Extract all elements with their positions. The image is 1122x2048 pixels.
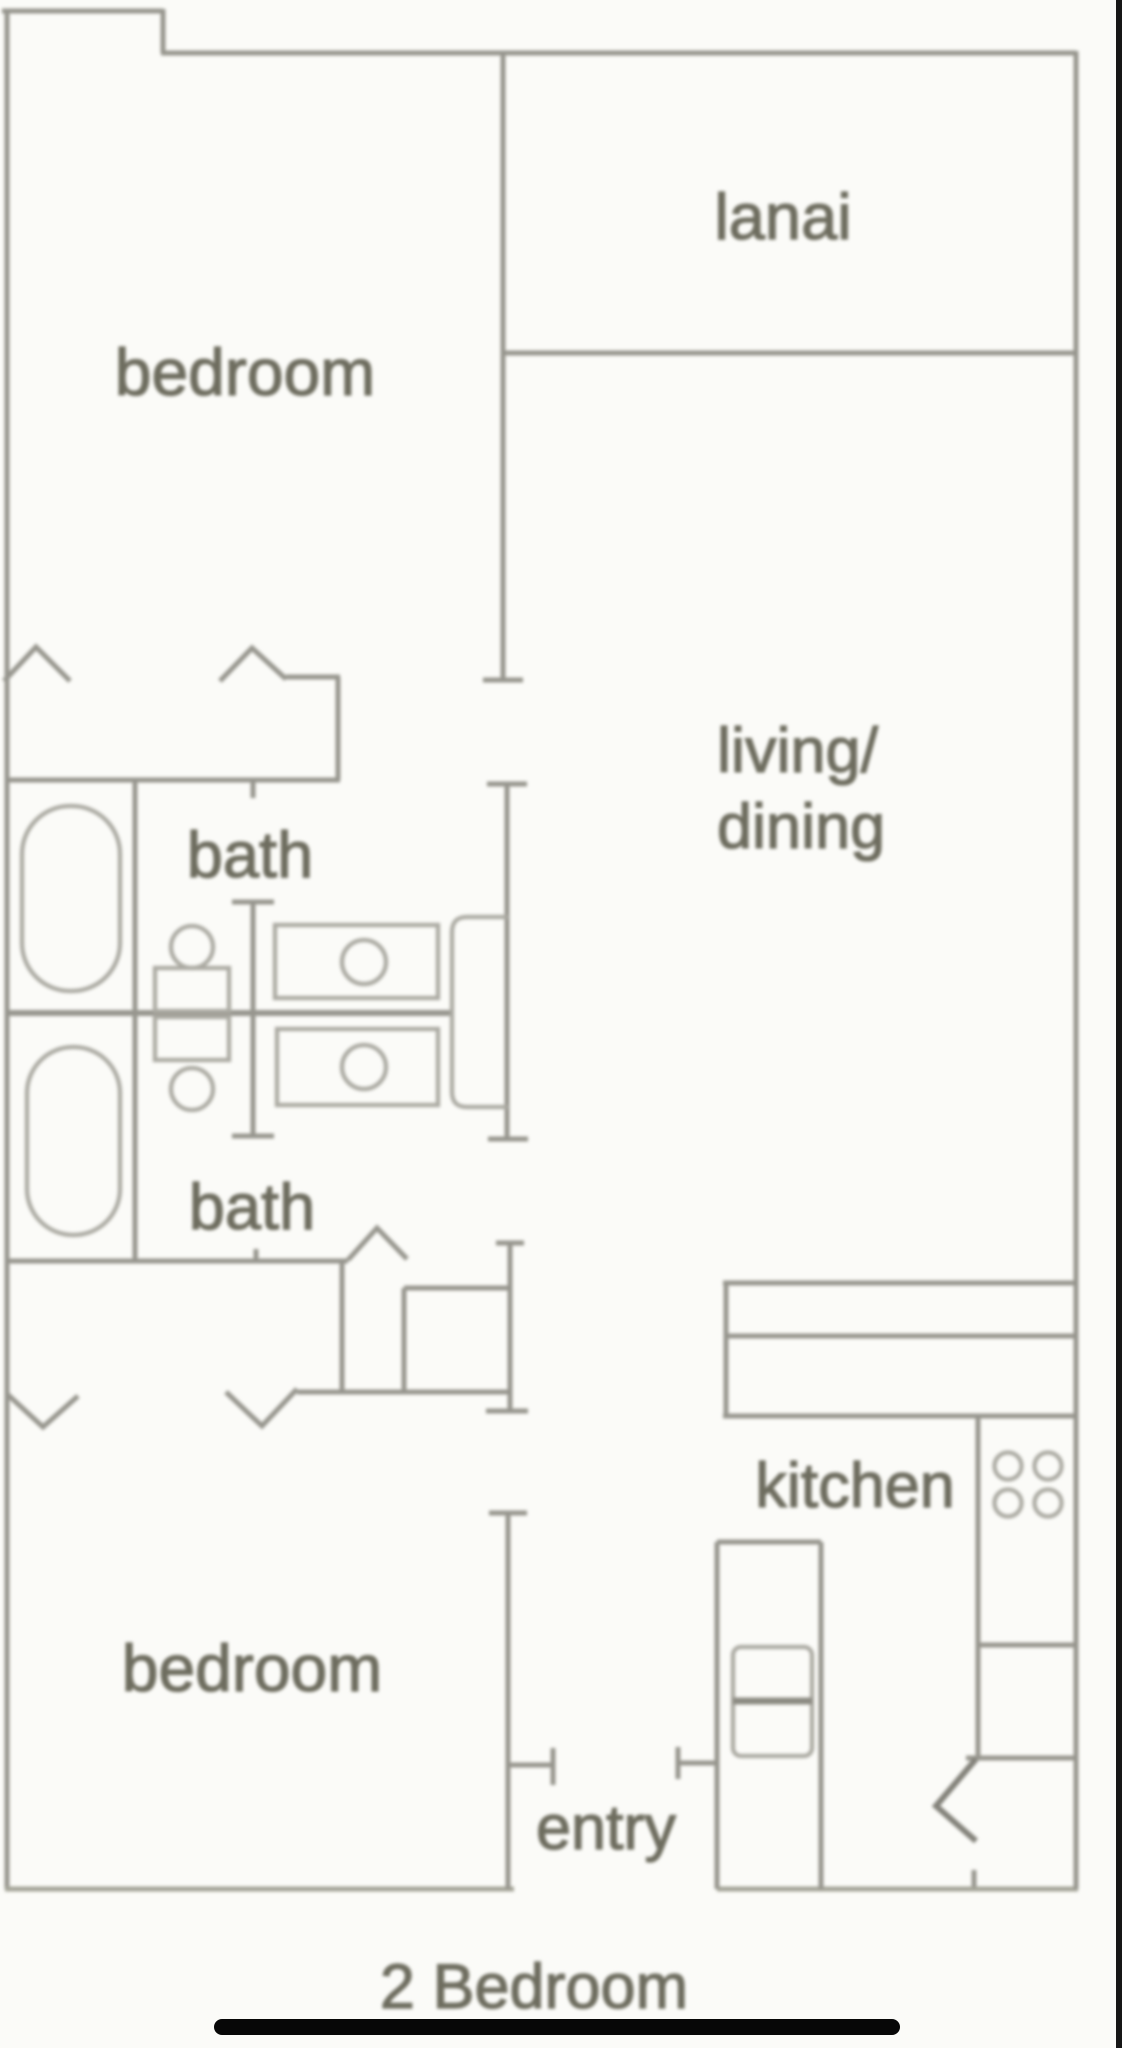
svg-text:bath: bath bbox=[189, 1170, 316, 1243]
svg-text:living/: living/ bbox=[717, 716, 879, 786]
svg-text:bath: bath bbox=[187, 818, 314, 891]
svg-text:kitchen: kitchen bbox=[755, 1451, 955, 1521]
svg-text:dining: dining bbox=[717, 792, 885, 862]
svg-text:entry: entry bbox=[536, 1793, 677, 1863]
svg-text:bedroom: bedroom bbox=[115, 335, 376, 409]
svg-text:bedroom: bedroom bbox=[122, 1631, 383, 1705]
svg-text:lanai: lanai bbox=[714, 180, 851, 253]
svg-text:2 Bedroom: 2 Bedroom bbox=[380, 1952, 688, 2022]
